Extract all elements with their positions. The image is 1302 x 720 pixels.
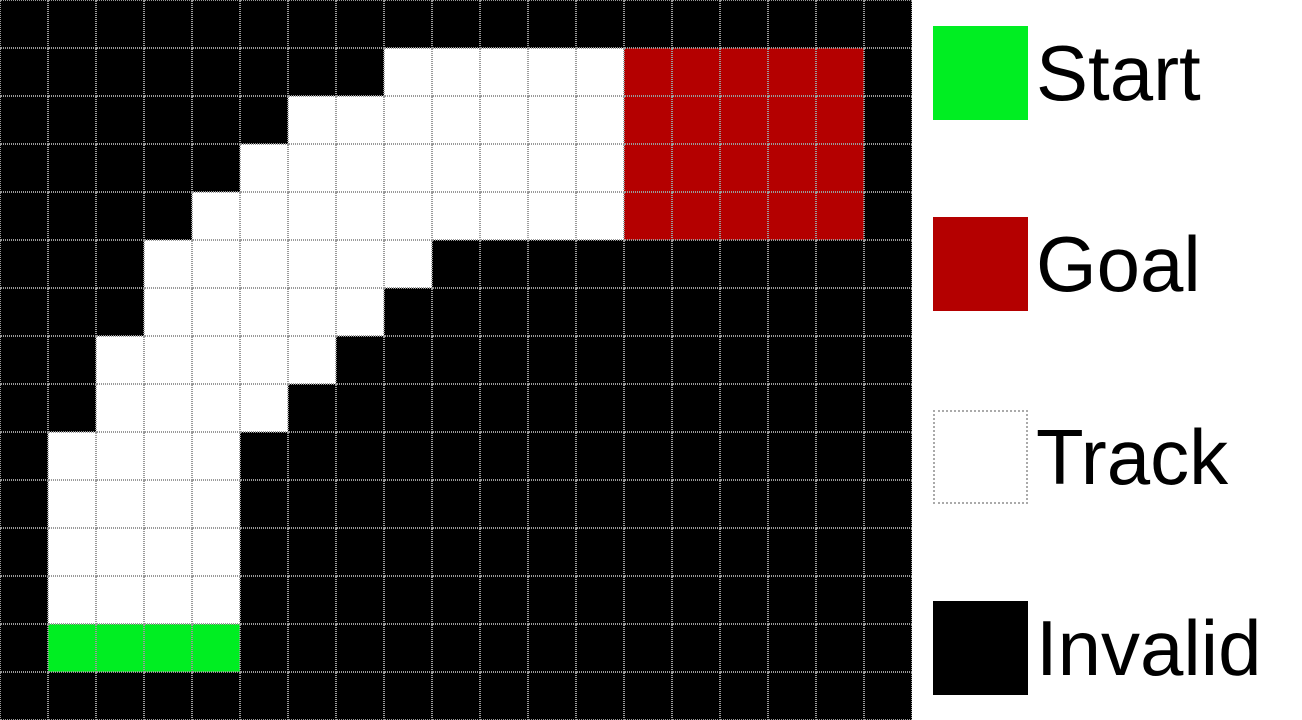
grid-cell-invalid <box>720 576 768 624</box>
grid-cell-invalid <box>288 672 336 720</box>
grid-cell-invalid <box>144 0 192 48</box>
grid-cell-invalid <box>432 480 480 528</box>
grid-cell-invalid <box>0 240 48 288</box>
grid-cell-invalid <box>192 0 240 48</box>
grid-cell-invalid <box>624 432 672 480</box>
grid-cell-invalid <box>432 528 480 576</box>
grid-cell-goal <box>624 144 672 192</box>
grid-cell-invalid <box>864 480 912 528</box>
grid-cell-invalid <box>240 0 288 48</box>
grid-cell-invalid <box>768 624 816 672</box>
grid-cell-invalid <box>144 96 192 144</box>
grid-cell-track <box>384 192 432 240</box>
grid-cell-invalid <box>864 96 912 144</box>
grid-cell-invalid <box>672 528 720 576</box>
invalid-swatch <box>933 601 1028 695</box>
grid-cell-invalid <box>864 576 912 624</box>
grid-cell-invalid <box>48 672 96 720</box>
grid-cell-invalid <box>336 624 384 672</box>
grid-cell-invalid <box>384 384 432 432</box>
grid-cell-invalid <box>720 672 768 720</box>
legend-item-goal: Goal <box>933 217 1201 311</box>
grid-cell-invalid <box>576 480 624 528</box>
grid-cell-invalid <box>576 672 624 720</box>
grid-cell-invalid <box>624 624 672 672</box>
legend-item-track: Track <box>933 410 1228 504</box>
grid-cell-invalid <box>96 144 144 192</box>
grid-cell-invalid <box>864 624 912 672</box>
grid-cell-invalid <box>720 432 768 480</box>
grid-cell-track <box>240 288 288 336</box>
grid-cell-track <box>432 144 480 192</box>
grid-cell-invalid <box>96 288 144 336</box>
legend-item-invalid: Invalid <box>933 601 1261 695</box>
grid-cell-track <box>96 528 144 576</box>
grid-cell-track <box>576 48 624 96</box>
grid-cell-track <box>576 96 624 144</box>
grid-cell-invalid <box>528 384 576 432</box>
grid-cell-start <box>96 624 144 672</box>
grid-cell-goal <box>768 144 816 192</box>
grid-cell-invalid <box>0 672 48 720</box>
grid-cell-invalid <box>720 384 768 432</box>
grid-cell-goal <box>768 192 816 240</box>
grid-cell-track <box>288 240 336 288</box>
grid-cell-invalid <box>96 192 144 240</box>
racetrack-grid <box>0 0 912 720</box>
grid-cell-track <box>144 288 192 336</box>
grid-cell-start <box>192 624 240 672</box>
invalid-label: Invalid <box>1036 609 1261 687</box>
grid-cell-invalid <box>576 576 624 624</box>
grid-cell-track <box>288 96 336 144</box>
grid-cell-invalid <box>768 336 816 384</box>
grid-cell-track <box>240 384 288 432</box>
grid-cell-invalid <box>384 0 432 48</box>
grid-cell-goal <box>768 48 816 96</box>
grid-cell-invalid <box>624 384 672 432</box>
grid-cell-track <box>144 384 192 432</box>
grid-cell-invalid <box>480 336 528 384</box>
grid-cell-goal <box>624 48 672 96</box>
grid-cell-invalid <box>816 240 864 288</box>
grid-cell-invalid <box>624 480 672 528</box>
grid-cell-invalid <box>768 432 816 480</box>
grid-cell-track <box>480 144 528 192</box>
grid-cell-invalid <box>0 336 48 384</box>
grid-cell-invalid <box>576 384 624 432</box>
grid-cell-invalid <box>480 528 528 576</box>
grid-cell-invalid <box>48 192 96 240</box>
grid-cell-invalid <box>96 96 144 144</box>
grid-cell-invalid <box>816 480 864 528</box>
grid-cell-invalid <box>0 384 48 432</box>
grid-cell-invalid <box>288 0 336 48</box>
grid-cell-invalid <box>864 48 912 96</box>
grid-cell-invalid <box>288 48 336 96</box>
grid-cell-invalid <box>192 96 240 144</box>
grid-cell-invalid <box>144 672 192 720</box>
grid-cell-invalid <box>288 432 336 480</box>
grid-cell-track <box>96 432 144 480</box>
grid-cell-invalid <box>480 624 528 672</box>
grid-cell-track <box>192 432 240 480</box>
grid-cell-invalid <box>336 384 384 432</box>
grid-cell-invalid <box>480 480 528 528</box>
grid-cell-invalid <box>48 48 96 96</box>
grid-cell-invalid <box>336 480 384 528</box>
grid-cell-invalid <box>576 336 624 384</box>
track-label: Track <box>1036 418 1228 496</box>
grid-cell-track <box>432 192 480 240</box>
grid-cell-track <box>432 96 480 144</box>
grid-cell-track <box>48 480 96 528</box>
grid-cell-invalid <box>720 0 768 48</box>
grid-cell-invalid <box>720 336 768 384</box>
grid-cell-track <box>528 144 576 192</box>
grid-cell-invalid <box>336 432 384 480</box>
grid-cell-track <box>240 336 288 384</box>
grid-cell-invalid <box>240 528 288 576</box>
grid-cell-invalid <box>336 48 384 96</box>
grid-cell-invalid <box>0 528 48 576</box>
grid-cell-invalid <box>432 240 480 288</box>
grid-cell-track <box>336 144 384 192</box>
grid-cell-invalid <box>720 240 768 288</box>
grid-cell-track <box>384 240 432 288</box>
grid-cell-goal <box>816 192 864 240</box>
grid-cell-invalid <box>0 96 48 144</box>
grid-cell-invalid <box>48 288 96 336</box>
grid-cell-invalid <box>432 0 480 48</box>
grid-cell-invalid <box>672 336 720 384</box>
grid-cell-invalid <box>432 384 480 432</box>
grid-cell-invalid <box>672 480 720 528</box>
grid-cell-invalid <box>864 384 912 432</box>
grid-cell-invalid <box>768 0 816 48</box>
grid-cell-track <box>48 576 96 624</box>
grid-cell-track <box>96 480 144 528</box>
grid-cell-invalid <box>48 96 96 144</box>
grid-cell-invalid <box>96 240 144 288</box>
grid-cell-invalid <box>480 240 528 288</box>
grid-cell-invalid <box>768 288 816 336</box>
grid-cell-invalid <box>816 0 864 48</box>
grid-cell-invalid <box>816 528 864 576</box>
grid-cell-invalid <box>864 336 912 384</box>
grid-cell-invalid <box>96 672 144 720</box>
legend: Start Goal Track Invalid <box>912 0 1302 720</box>
grid-cell-invalid <box>240 624 288 672</box>
grid-cell-invalid <box>528 432 576 480</box>
grid-cell-invalid <box>528 336 576 384</box>
grid-cell-goal <box>768 96 816 144</box>
grid-cell-invalid <box>528 0 576 48</box>
grid-cell-track <box>144 480 192 528</box>
grid-cell-invalid <box>672 576 720 624</box>
grid-cell-track <box>96 576 144 624</box>
grid-cell-track <box>288 288 336 336</box>
grid-cell-track <box>336 96 384 144</box>
grid-cell-invalid <box>816 288 864 336</box>
grid-cell-goal <box>672 48 720 96</box>
racetrack-figure: Start Goal Track Invalid <box>0 0 1302 720</box>
grid-cell-invalid <box>288 480 336 528</box>
grid-cell-invalid <box>384 336 432 384</box>
grid-cell-invalid <box>432 432 480 480</box>
grid-cell-invalid <box>336 672 384 720</box>
grid-cell-track <box>192 528 240 576</box>
grid-cell-goal <box>816 96 864 144</box>
grid-cell-invalid <box>432 576 480 624</box>
grid-cell-goal <box>672 96 720 144</box>
grid-cell-invalid <box>864 144 912 192</box>
grid-cell-track <box>192 480 240 528</box>
start-swatch <box>933 26 1028 120</box>
grid-cell-invalid <box>816 672 864 720</box>
grid-cell-track <box>144 432 192 480</box>
grid-cell-invalid <box>864 672 912 720</box>
grid-cell-invalid <box>480 432 528 480</box>
grid-cell-track <box>144 240 192 288</box>
grid-cell-invalid <box>576 432 624 480</box>
grid-cell-invalid <box>624 528 672 576</box>
grid-cell-track <box>240 144 288 192</box>
grid-cell-invalid <box>384 432 432 480</box>
grid-cell-invalid <box>768 576 816 624</box>
grid-cell-invalid <box>0 0 48 48</box>
grid-cell-invalid <box>432 624 480 672</box>
grid-cell-invalid <box>672 0 720 48</box>
grid-cell-goal <box>672 192 720 240</box>
grid-cell-track <box>192 240 240 288</box>
grid-cell-invalid <box>384 624 432 672</box>
grid-cell-invalid <box>672 672 720 720</box>
grid-cell-track <box>96 384 144 432</box>
grid-cell-invalid <box>528 480 576 528</box>
grid-cell-invalid <box>720 288 768 336</box>
grid-cell-track <box>192 384 240 432</box>
grid-cell-invalid <box>576 528 624 576</box>
grid-cell-invalid <box>480 672 528 720</box>
grid-cell-goal <box>816 48 864 96</box>
grid-cell-track <box>528 96 576 144</box>
start-label: Start <box>1036 34 1201 112</box>
grid-cell-track <box>192 288 240 336</box>
grid-cell-invalid <box>768 240 816 288</box>
grid-cell-track <box>288 144 336 192</box>
grid-cell-invalid <box>48 384 96 432</box>
grid-cell-invalid <box>0 192 48 240</box>
grid-cell-invalid <box>0 48 48 96</box>
grid-cell-invalid <box>720 624 768 672</box>
grid-cell-invalid <box>144 48 192 96</box>
grid-cell-goal <box>720 192 768 240</box>
grid-cell-invalid <box>768 480 816 528</box>
grid-cell-goal <box>720 96 768 144</box>
grid-cell-invalid <box>624 336 672 384</box>
grid-cell-goal <box>720 48 768 96</box>
grid-cell-track <box>144 528 192 576</box>
grid-cell-invalid <box>528 672 576 720</box>
grid-cell-invalid <box>720 480 768 528</box>
grid-cell-invalid <box>624 576 672 624</box>
grid-cell-track <box>528 192 576 240</box>
grid-cell-invalid <box>240 48 288 96</box>
grid-cell-track <box>240 240 288 288</box>
grid-cell-invalid <box>480 0 528 48</box>
grid-cell-invalid <box>768 384 816 432</box>
grid-cell-invalid <box>48 336 96 384</box>
grid-cell-invalid <box>336 576 384 624</box>
grid-cell-invalid <box>768 672 816 720</box>
grid-cell-invalid <box>432 672 480 720</box>
grid-cell-track <box>192 336 240 384</box>
grid-cell-track <box>336 192 384 240</box>
grid-cell-invalid <box>48 240 96 288</box>
grid-cell-invalid <box>528 624 576 672</box>
grid-cell-invalid <box>528 576 576 624</box>
grid-cell-track <box>192 192 240 240</box>
grid-cell-invalid <box>0 480 48 528</box>
grid-cell-track <box>96 336 144 384</box>
grid-cell-invalid <box>816 624 864 672</box>
grid-cell-invalid <box>480 576 528 624</box>
grid-cell-track <box>144 576 192 624</box>
grid-cell-invalid <box>144 144 192 192</box>
grid-cell-invalid <box>288 528 336 576</box>
grid-cell-invalid <box>624 288 672 336</box>
grid-cell-invalid <box>192 48 240 96</box>
goal-label: Goal <box>1036 225 1201 303</box>
grid-cell-invalid <box>864 432 912 480</box>
grid-cell-invalid <box>384 288 432 336</box>
grid-cell-invalid <box>48 0 96 48</box>
grid-cell-invalid <box>432 288 480 336</box>
legend-item-start: Start <box>933 26 1201 120</box>
grid-cell-track <box>480 96 528 144</box>
grid-cell-invalid <box>864 240 912 288</box>
grid-cell-invalid <box>192 144 240 192</box>
grid-cell-invalid <box>0 432 48 480</box>
grid-cell-invalid <box>96 0 144 48</box>
grid-cell-invalid <box>240 672 288 720</box>
grid-cell-invalid <box>480 288 528 336</box>
grid-cell-invalid <box>816 384 864 432</box>
grid-cell-invalid <box>528 528 576 576</box>
grid-cell-invalid <box>864 0 912 48</box>
grid-cell-invalid <box>384 576 432 624</box>
grid-cell-goal <box>624 192 672 240</box>
grid-cell-track <box>528 48 576 96</box>
grid-cell-start <box>48 624 96 672</box>
grid-cell-track <box>480 48 528 96</box>
grid-cell-invalid <box>672 240 720 288</box>
grid-cell-goal <box>720 144 768 192</box>
grid-cell-invalid <box>288 384 336 432</box>
grid-cell-invalid <box>0 624 48 672</box>
grid-cell-invalid <box>816 336 864 384</box>
grid-cell-start <box>144 624 192 672</box>
grid-cell-track <box>384 48 432 96</box>
grid-cell-track <box>48 528 96 576</box>
grid-cell-track <box>336 288 384 336</box>
grid-cell-invalid <box>240 96 288 144</box>
grid-cell-invalid <box>864 528 912 576</box>
grid-cell-invalid <box>720 528 768 576</box>
grid-cell-invalid <box>624 0 672 48</box>
grid-cell-invalid <box>864 288 912 336</box>
grid-cell-invalid <box>672 384 720 432</box>
grid-cell-track <box>48 432 96 480</box>
grid-cell-invalid <box>624 672 672 720</box>
grid-cell-invalid <box>336 0 384 48</box>
grid-cell-track <box>192 576 240 624</box>
grid-cell-invalid <box>240 576 288 624</box>
grid-cell-invalid <box>0 288 48 336</box>
grid-cell-invalid <box>672 288 720 336</box>
grid-cell-invalid <box>480 384 528 432</box>
grid-cell-invalid <box>48 144 96 192</box>
grid-cell-invalid <box>0 576 48 624</box>
goal-swatch <box>933 217 1028 311</box>
grid-cell-invalid <box>672 432 720 480</box>
grid-cell-invalid <box>576 624 624 672</box>
grid-cell-track <box>240 192 288 240</box>
grid-cell-invalid <box>240 432 288 480</box>
track-swatch <box>933 410 1028 504</box>
grid-cell-goal <box>672 144 720 192</box>
grid-cell-invalid <box>624 240 672 288</box>
grid-cell-invalid <box>240 480 288 528</box>
grid-cell-invalid <box>0 144 48 192</box>
grid-cell-invalid <box>576 288 624 336</box>
grid-cell-invalid <box>672 624 720 672</box>
grid-cell-goal <box>816 144 864 192</box>
grid-cell-invalid <box>144 192 192 240</box>
grid-cell-invalid <box>528 288 576 336</box>
grid-cell-track <box>384 96 432 144</box>
grid-cell-track <box>336 240 384 288</box>
grid-cell-invalid <box>528 240 576 288</box>
grid-cell-invalid <box>336 528 384 576</box>
grid-cell-invalid <box>96 48 144 96</box>
grid-cell-invalid <box>192 672 240 720</box>
grid-cell-track <box>144 336 192 384</box>
grid-cell-invalid <box>576 240 624 288</box>
grid-cell-invalid <box>816 576 864 624</box>
grid-cell-invalid <box>384 480 432 528</box>
grid-cell-track <box>576 192 624 240</box>
grid-cell-invalid <box>336 336 384 384</box>
grid-cell-track <box>480 192 528 240</box>
grid-cell-invalid <box>288 624 336 672</box>
grid-cell-invalid <box>816 432 864 480</box>
grid-cell-track <box>288 336 336 384</box>
grid-cell-invalid <box>288 576 336 624</box>
grid-cell-invalid <box>768 528 816 576</box>
grid-cell-track <box>576 144 624 192</box>
grid-cell-invalid <box>384 528 432 576</box>
grid-cell-invalid <box>576 0 624 48</box>
grid-cell-track <box>432 48 480 96</box>
grid-cell-goal <box>624 96 672 144</box>
grid-cell-track <box>288 192 336 240</box>
grid-cell-track <box>384 144 432 192</box>
grid-cell-invalid <box>864 192 912 240</box>
grid-cell-invalid <box>432 336 480 384</box>
grid-cell-invalid <box>384 672 432 720</box>
